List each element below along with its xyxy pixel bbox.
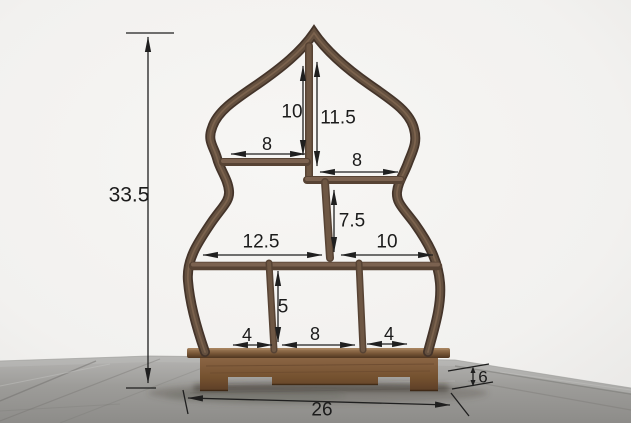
dim-label-mid-right-height: 7.5 [339,212,365,231]
dim-label-bottom-left-width: 4 [242,326,252,344]
dim-label-base-width: 26 [311,401,332,420]
stand-base [187,348,450,391]
dim-label-top-right-height: 11.5 [320,109,356,128]
dim-label-base-depth: 6 [478,369,487,386]
dim-label-top-left-height: 10 [281,103,302,122]
dim-label-mid-right-width: 10 [376,233,397,252]
photo-canvas [0,0,631,423]
dim-label-mid-left-width: 12.5 [243,233,280,252]
dim-label-bottom-right-width: 4 [384,325,394,343]
product-photo: 33.5 10 11.5 8 8 7.5 12.5 10 5 4 8 4 26 … [0,0,631,423]
dim-label-bottom-height: 5 [278,298,289,317]
dim-label-overall-height: 33.5 [109,185,150,206]
dim-label-bottom-center-width: 8 [310,325,320,343]
dim-label-top-right-width: 8 [352,151,362,169]
dim-label-top-left-width: 8 [262,135,272,153]
